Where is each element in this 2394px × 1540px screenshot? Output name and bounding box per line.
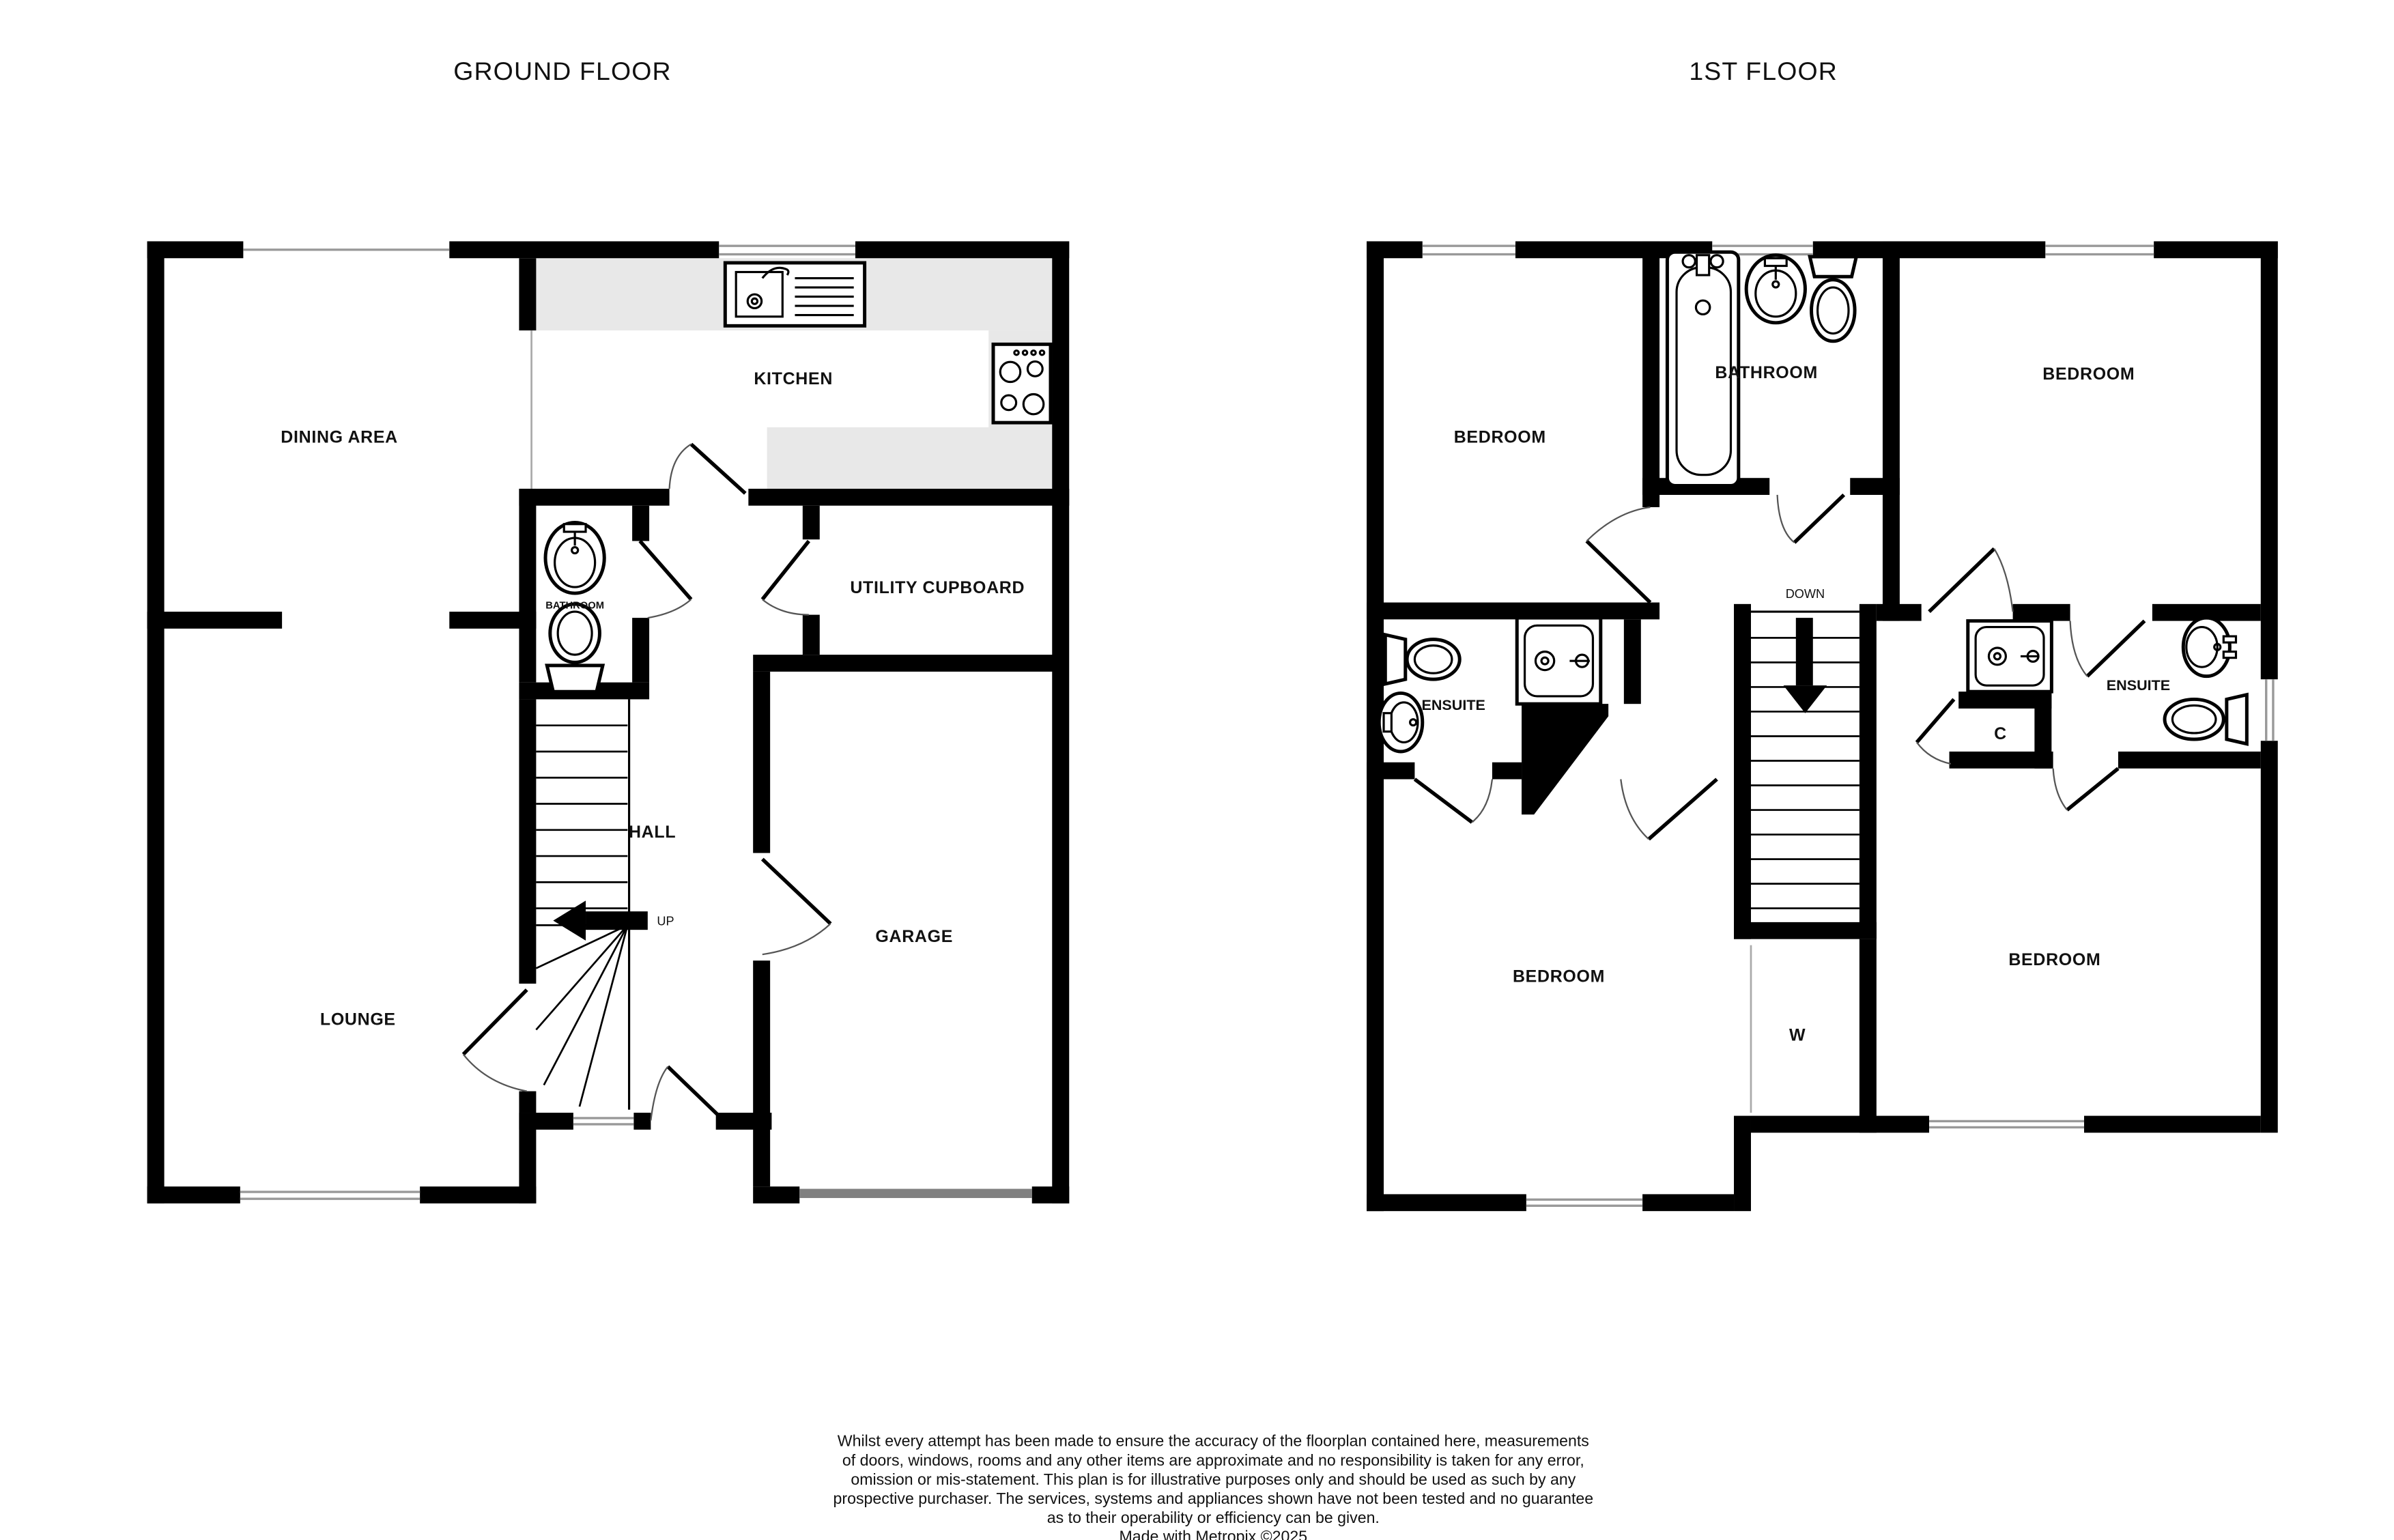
up-label: UP [657,914,674,928]
staircase-up [536,699,647,1109]
ff-bathroom-label: BATHROOM [1715,363,1818,382]
kitchen-sink-icon [725,263,864,326]
first-floor-walls [1367,241,2278,1211]
bedroom-bl-label: BEDROOM [1513,967,1605,986]
front-door [651,1067,724,1121]
kitchen-label: KITCHEN [754,369,833,388]
garage-door [799,1189,1031,1199]
bathroom-door [640,541,691,618]
disclaimer-line-3: omission or mis-statement. This plan is … [851,1470,1576,1488]
bedroom-tl-door [1586,507,1650,603]
ensuite-right-shower-icon [1968,621,2052,692]
lounge-label: LOUNGE [320,1010,396,1029]
garage-label: GARAGE [875,927,953,946]
up-arrow-icon [553,900,647,941]
disclaimer-line-5: as to their operability or efficiency ca… [1047,1509,1380,1526]
bedroom-tr-door [1929,549,2013,612]
first-floor-title: 1ST FLOOR [1689,57,1838,85]
ensuite-right-door [2070,621,2145,676]
bedroom-bl-door [1621,780,1717,840]
disclaimer: Whilst every attempt has been made to en… [833,1432,1594,1540]
bedroom-tl-label: BEDROOM [1454,428,1546,447]
disclaimer-line-2: of doors, windows, rooms and any other i… [842,1451,1584,1469]
wardrobe-label: W [1789,1025,1806,1044]
gf-bathroom-label: BATHROOM [545,601,604,612]
garage-internal-door [763,859,831,955]
toilet-icon [547,604,603,691]
floorplan-canvas: GROUND FLOOR 1ST FLOOR [0,0,2394,1540]
ensuite-left-toilet-icon [1385,635,1459,684]
ensuite-right-toilet-icon [2165,695,2247,744]
bedroom-tr-label: BEDROOM [2042,365,2135,384]
basin-icon [545,523,604,594]
disclaimer-line-6: Made with Metropix ©2025 [1120,1527,1308,1540]
ff-bathroom-door [1778,495,1844,543]
ground-floor-plan: DINING AREA KITCHEN BATHROOM UTILITY CUP… [147,241,1070,1203]
ground-floor-windows [240,246,1032,1199]
under-stairs-wall [1522,704,1608,814]
utility-cupboard-label: UTILITY CUPBOARD [850,578,1025,597]
hall-label: HALL [629,823,676,842]
bedroom-br-label: BEDROOM [2008,950,2100,969]
first-floor-plan: BEDROOM BATHROOM BEDROOM DOWN ENSUITE EN… [1367,241,2278,1211]
utility-door [763,541,809,615]
down-label: DOWN [1786,587,1825,601]
staircase-down [1751,612,1859,909]
ensuite-left-label: ENSUITE [1421,697,1485,713]
disclaimer-line-4: prospective purchaser. The services, sys… [833,1489,1594,1507]
dining-area-label: DINING AREA [281,428,398,447]
ensuite-right-basin-icon [2183,618,2236,676]
ensuite-left-basin-icon [1379,693,1423,752]
lounge-door [464,990,527,1092]
cupboard-label: C [1994,724,2007,743]
bedroom-br-door [2053,769,2118,810]
hob-icon [993,344,1051,423]
cupboard-door [1917,699,1954,764]
ff-bathroom-basin-icon [1746,255,1805,323]
down-arrow-icon [1784,618,1827,713]
ensuite-left-door [1414,780,1492,823]
kitchen-door [670,444,745,494]
ensuite-right-label: ENSUITE [2107,677,2170,694]
ff-bathroom-toilet-icon [1810,257,1856,341]
ground-floor-walls [147,241,1070,1203]
ground-floor-title: GROUND FLOOR [453,57,671,85]
disclaimer-line-1: Whilst every attempt has been made to en… [838,1432,1589,1450]
ground-floor-doors [464,444,831,1121]
ensuite-left-shower-icon [1517,618,1601,704]
